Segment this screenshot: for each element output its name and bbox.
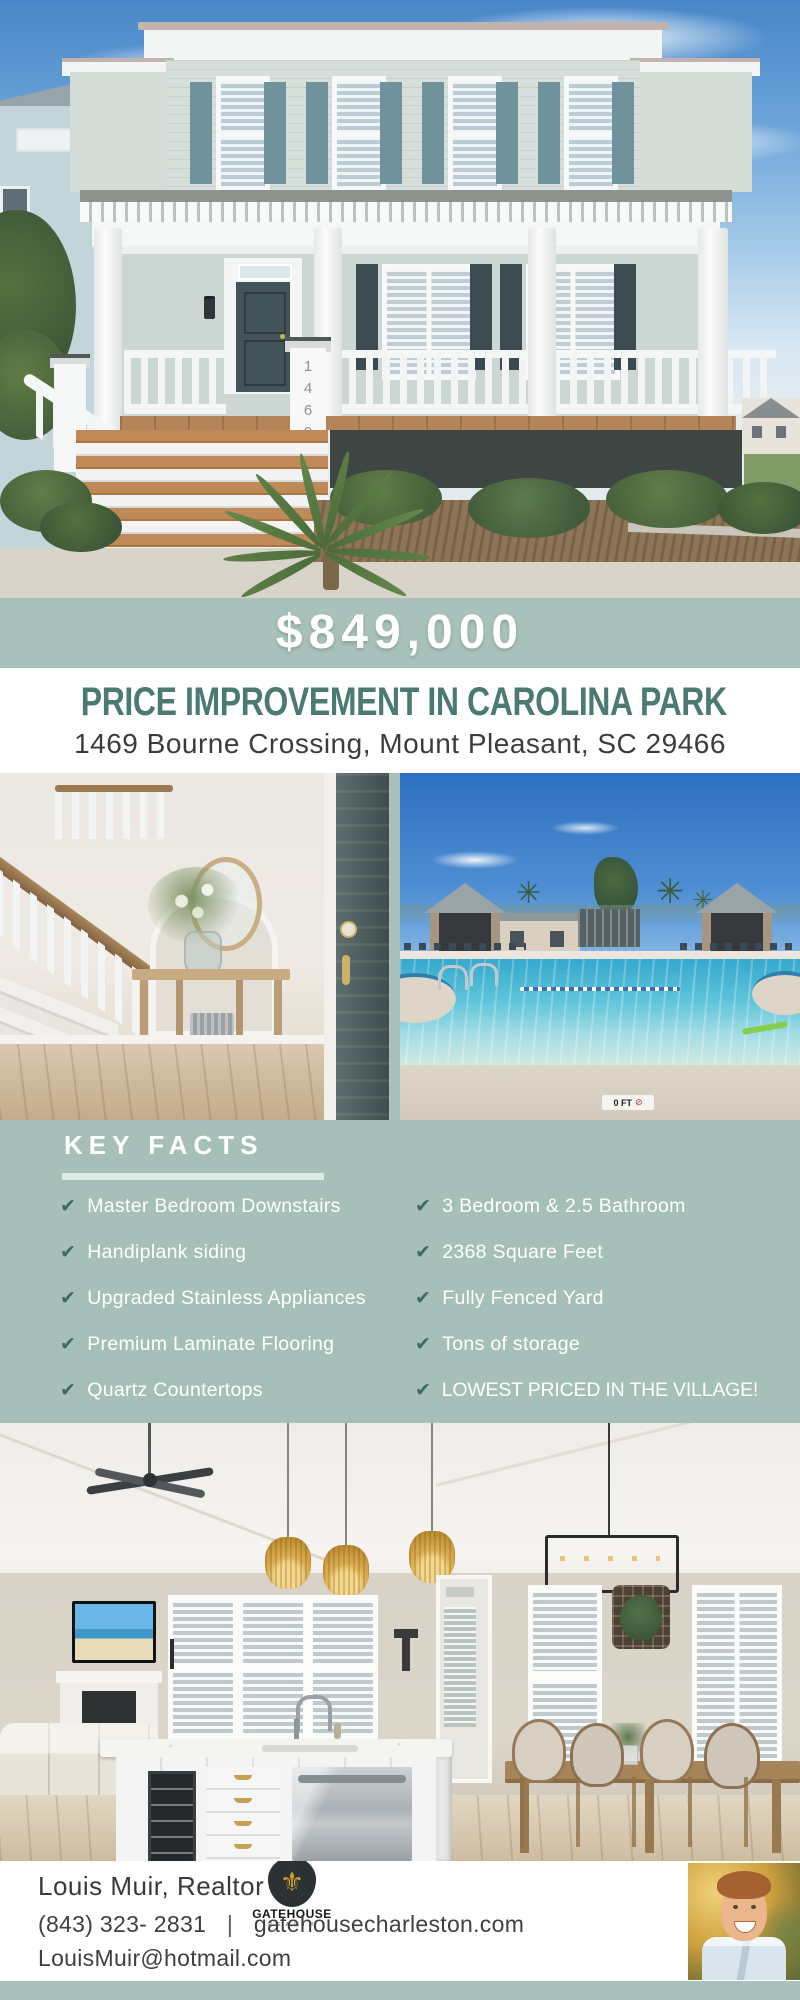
list-item: ✔LOWEST PRICED IN THE VILLAGE! — [415, 1376, 800, 1404]
palm-tree-icon: ✳ — [656, 875, 685, 909]
list-item: ✔Tons of storage — [415, 1330, 800, 1358]
list-item: ✔Quartz Countertops — [60, 1376, 405, 1404]
lounge-chairs — [404, 943, 526, 950]
list-item: ✔Upgraded Stainless Appliances — [60, 1284, 405, 1312]
open-front-door — [336, 773, 389, 1120]
door-frame — [324, 773, 336, 1120]
shutter — [538, 82, 560, 184]
shutter — [496, 82, 518, 184]
kitchen-faucet-icon — [296, 1695, 332, 1731]
letter-t-decor — [394, 1629, 418, 1671]
window — [448, 76, 502, 194]
door-panel — [244, 292, 286, 334]
pendant-stem — [345, 1423, 347, 1549]
mantel — [56, 1671, 162, 1683]
property-address: 1469 Bourne Crossing, Mount Pleasant, SC… — [0, 728, 800, 760]
roof-cap — [138, 22, 668, 30]
ceiling-fan-icon — [86, 1471, 214, 1493]
foyer-photo — [0, 773, 389, 1120]
upper-window-bay — [190, 82, 286, 184]
list-item: ✔Fully Fenced Yard — [415, 1284, 800, 1312]
phone-number: (843) 323- 2831 — [38, 1911, 206, 1937]
wreath-icon — [620, 1595, 662, 1641]
pool-photo: ✳ ✳ ✳ — [400, 773, 800, 1120]
check-icon: ✔ — [60, 1333, 76, 1356]
list-item-label: Tons of storage — [442, 1333, 580, 1356]
porch-beam — [92, 222, 720, 249]
rattan-pendant-icon — [323, 1545, 369, 1597]
porch-column — [94, 228, 122, 430]
list-item-label: Master Bedroom Downstairs — [87, 1195, 341, 1218]
list-item: ✔2368 Square Feet — [415, 1238, 800, 1266]
shutter — [264, 82, 286, 184]
email-address: LouisMuir@hotmail.com — [38, 1945, 291, 1972]
upper-window-bay — [422, 82, 518, 184]
parapet — [144, 30, 662, 63]
list-item: ✔Premium Laminate Flooring — [60, 1330, 405, 1358]
lane-buoys — [520, 987, 680, 991]
check-icon: ✔ — [415, 1287, 431, 1310]
porch-railing — [124, 350, 226, 414]
shutter — [190, 82, 212, 184]
page-title: PRICE IMPROVEMENT IN CAROLINA PARK — [81, 680, 727, 725]
cloud — [430, 851, 520, 869]
wing-wall — [70, 72, 170, 192]
price-text: $849,000 — [0, 598, 800, 668]
shrub — [40, 502, 122, 552]
headshot-hair — [717, 1871, 771, 1899]
shutter — [306, 82, 328, 184]
wine-fridge — [148, 1771, 196, 1861]
shrub — [468, 478, 590, 538]
drawer-stack — [206, 1767, 280, 1861]
sink-line — [262, 1745, 358, 1752]
headshot-shirt — [702, 1937, 786, 1980]
check-icon: ✔ — [415, 1195, 431, 1218]
shutter — [612, 82, 634, 184]
lounge-chairs — [680, 943, 796, 950]
shutter — [380, 82, 402, 184]
list-item-label: 2368 Square Feet — [442, 1241, 603, 1264]
chair-legs — [520, 1777, 750, 1847]
baseboard — [0, 1035, 340, 1044]
pool-handrail-icon — [470, 963, 498, 986]
key-facts-list-left: ✔Master Bedroom Downstairs ✔Handiplank s… — [60, 1192, 405, 1422]
realtor-name: Louis Muir, Realtor — [38, 1871, 264, 1902]
check-icon: ✔ — [415, 1333, 431, 1356]
gatehouse-crest: ⚜ — [270, 1861, 314, 1905]
pool-coping — [400, 951, 800, 959]
porch-column — [698, 228, 728, 430]
shrub — [718, 482, 800, 534]
list-item-label: LOWEST PRICED IN THE VILLAGE! — [442, 1379, 758, 1402]
dining-chair — [640, 1719, 694, 1783]
island-end-panel — [438, 1757, 452, 1861]
pool-pergola — [578, 909, 640, 947]
shutter — [422, 82, 444, 184]
list-item: ✔Master Bedroom Downstairs — [60, 1192, 405, 1220]
headshot-eye — [733, 1905, 738, 1909]
check-icon: ✔ — [60, 1241, 76, 1264]
headline-section: PRICE IMPROVEMENT IN CAROLINA PARK 1469 … — [0, 668, 800, 773]
photo-row: ✳ ✳ ✳ — [0, 773, 800, 1120]
window — [216, 76, 270, 194]
table-leg — [772, 1779, 781, 1853]
cloud — [550, 821, 620, 835]
depth-sign: 0 FT ⊘ — [602, 1095, 654, 1110]
website-url: gatehousecharleston.com — [254, 1911, 524, 1937]
dining-chair — [512, 1719, 566, 1783]
soap-dispenser — [334, 1723, 341, 1739]
wing-wall — [638, 72, 752, 192]
porch-lantern-icon — [204, 296, 215, 319]
upper-window-bay — [306, 82, 402, 184]
sago-palm — [225, 448, 435, 598]
pendant-stem — [287, 1423, 289, 1541]
door-deadbolt — [340, 921, 357, 938]
front-door — [236, 282, 290, 392]
candlestick — [170, 1639, 174, 1669]
flyer-root: 1469 — [0, 0, 800, 2000]
exterior-photo: 1469 — [0, 0, 800, 598]
distant-house — [742, 398, 800, 454]
pool-deck — [400, 1065, 800, 1120]
neighbor-vent — [16, 128, 78, 152]
upper-window-bay — [538, 82, 634, 184]
list-item: ✔3 Bedroom & 2.5 Bathroom — [415, 1192, 800, 1220]
contact-separator: | — [227, 1911, 233, 1937]
pendant-stem — [431, 1423, 433, 1535]
key-facts-section: KEY FACTS ✔Master Bedroom Downstairs ✔Ha… — [0, 1120, 800, 1423]
chandelier-rod — [608, 1423, 610, 1537]
list-item: ✔Handiplank siding — [60, 1238, 405, 1266]
porch-floor — [120, 416, 736, 430]
vault-line — [436, 1423, 800, 1487]
gatehouse-crest-icon: ⚜ — [280, 1869, 304, 1896]
door-handle — [342, 955, 350, 985]
list-item-label: Handiplank siding — [87, 1241, 246, 1264]
check-icon: ✔ — [415, 1241, 431, 1264]
realtor-headshot — [688, 1863, 800, 1980]
porch-dentils — [80, 202, 732, 222]
check-icon: ✔ — [60, 1287, 76, 1310]
depth-sign-label: 0 FT — [613, 1098, 632, 1108]
upstairs-railing — [55, 785, 173, 839]
pool-handrail-icon — [438, 965, 468, 990]
window — [564, 76, 618, 194]
key-facts-list-right: ✔3 Bedroom & 2.5 Bathroom ✔2368 Square F… — [415, 1192, 800, 1422]
palm-tree-icon: ✳ — [516, 879, 541, 909]
window — [332, 76, 386, 194]
window — [168, 1595, 238, 1739]
shrub — [606, 470, 728, 528]
porch-roof-fascia — [80, 190, 732, 202]
list-item-label: Fully Fenced Yard — [442, 1287, 604, 1310]
faucet-base — [294, 1719, 299, 1741]
list-item-label: Quartz Countertops — [87, 1379, 263, 1402]
headshot-eye — [751, 1905, 756, 1909]
porch-column — [528, 228, 556, 430]
door-transom — [238, 264, 292, 280]
footer: Louis Muir, Realtor ⚜ GATEHOUSE R E A L … — [0, 1861, 800, 1981]
fan-downrod — [148, 1423, 151, 1475]
rattan-pendant-icon — [265, 1537, 311, 1589]
check-icon: ✔ — [60, 1379, 76, 1402]
dishwasher — [292, 1767, 412, 1861]
kitchen-photo — [0, 1423, 800, 1861]
wall-tv — [72, 1601, 156, 1663]
porch-railing — [332, 350, 698, 414]
list-item-label: 3 Bedroom & 2.5 Bathroom — [442, 1195, 686, 1218]
price-banner: $849,000 — [0, 598, 800, 668]
check-icon: ✔ — [60, 1195, 76, 1218]
list-item-label: Premium Laminate Flooring — [87, 1333, 334, 1356]
door-panel — [244, 340, 286, 386]
bottom-strip — [0, 1981, 800, 2000]
title-underline — [62, 1173, 324, 1180]
check-icon: ✔ — [415, 1379, 431, 1402]
list-item-label: Upgraded Stainless Appliances — [87, 1287, 366, 1310]
key-facts-title: KEY FACTS — [64, 1130, 263, 1161]
contact-line: (843) 323- 2831 | gatehousecharleston.co… — [38, 1911, 524, 1938]
no-diving-icon: ⊘ — [635, 1098, 643, 1107]
